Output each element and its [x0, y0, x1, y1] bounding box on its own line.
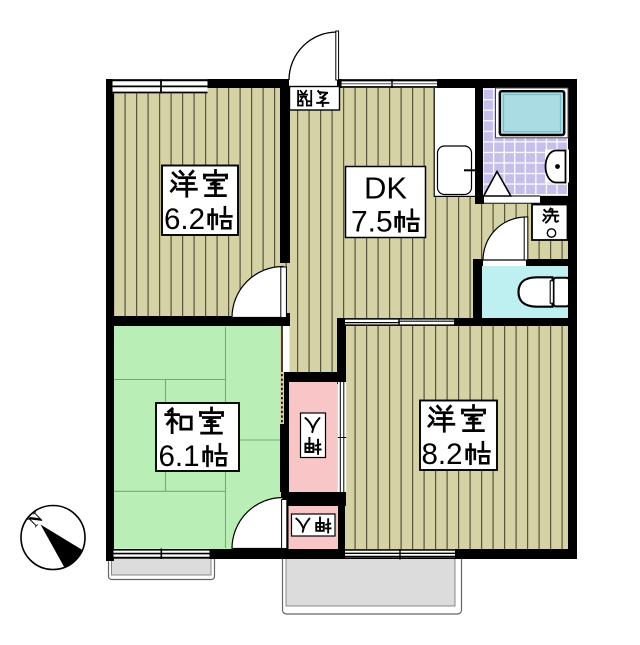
svg-text:7.5: 7.5: [351, 206, 393, 239]
svg-text:6.2: 6.2: [164, 203, 205, 236]
svg-text:8.2: 8.2: [422, 438, 463, 471]
svg-text:DK: DK: [364, 171, 407, 206]
svg-text:6.1: 6.1: [159, 440, 200, 473]
